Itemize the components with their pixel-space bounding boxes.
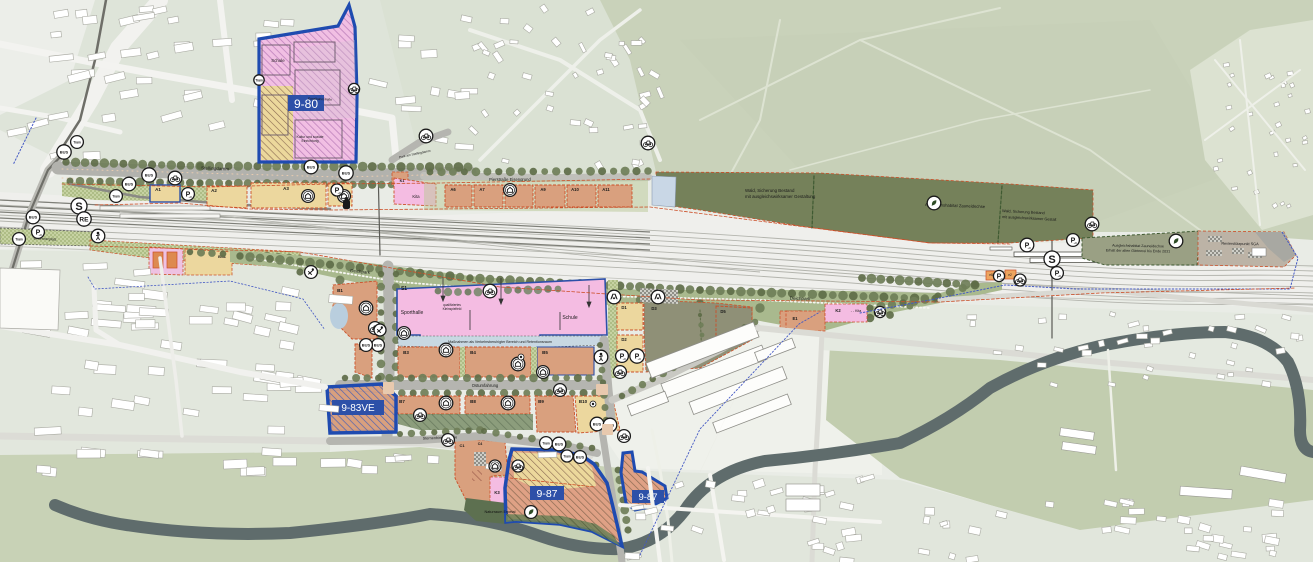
svg-text:BUS: BUS	[29, 215, 38, 220]
svg-text:BUS: BUS	[125, 182, 134, 187]
svg-text:D1: D1	[621, 305, 627, 310]
svg-text:A1: A1	[155, 187, 161, 192]
svg-text:BUS: BUS	[307, 165, 316, 170]
svg-text:+R: +R	[1028, 246, 1032, 250]
svg-text:B8: B8	[470, 399, 476, 404]
svg-text:e8: e8	[989, 273, 993, 277]
svg-text:+R: +R	[338, 191, 342, 195]
svg-text:Tram: Tram	[255, 79, 263, 83]
svg-text:Tram: Tram	[542, 442, 550, 446]
svg-text:Naturraum Erpetal: Naturraum Erpetal	[484, 510, 515, 514]
svg-text:+R: +R	[189, 195, 193, 199]
svg-text:B1: B1	[337, 288, 343, 293]
svg-text:- - Kita: - - Kita	[851, 309, 862, 313]
svg-text:Kleinspielfeld: Kleinspielfeld	[443, 307, 462, 311]
svg-text:e2: e2	[1008, 273, 1012, 277]
svg-text:mit ausgleichswirksamer Gestal: mit ausgleichswirksamer Gestaltung	[745, 194, 816, 199]
svg-text:+R: +R	[1058, 274, 1062, 278]
svg-text:RE: RE	[79, 216, 89, 223]
svg-text:K1: K1	[400, 179, 405, 183]
svg-text:A10: A10	[571, 187, 579, 192]
svg-text:Schule: Schule	[562, 315, 578, 321]
svg-text:Kita: Kita	[412, 194, 420, 199]
svg-text:+R: +R	[638, 357, 642, 361]
svg-text:+R: +R	[623, 357, 627, 361]
svg-text:Schule: Schule	[271, 58, 285, 63]
svg-text:Einrichtung: Einrichtung	[302, 139, 319, 143]
svg-text:BUS: BUS	[593, 422, 602, 427]
svg-text:B7: B7	[399, 399, 405, 404]
svg-text:B4: B4	[470, 350, 476, 355]
svg-text:Tram: Tram	[563, 455, 571, 459]
svg-text:C4: C4	[478, 442, 483, 446]
svg-text:9-87: 9-87	[536, 488, 557, 500]
svg-text:S1: S1	[401, 286, 407, 292]
svg-text:A2: A2	[211, 188, 217, 193]
svg-text:A6: A6	[450, 187, 456, 192]
svg-text:A9: A9	[540, 187, 546, 192]
svg-text:BUS: BUS	[362, 343, 371, 348]
svg-text:BUS: BUS	[145, 173, 154, 178]
svg-text:C1: C1	[459, 443, 465, 448]
svg-text:Wald, Sicherung Bestand: Wald, Sicherung Bestand	[745, 188, 795, 193]
svg-text:S: S	[75, 201, 82, 213]
svg-text:Tram: Tram	[73, 141, 81, 145]
svg-text:B10: B10	[579, 399, 588, 404]
svg-text:+R: +R	[1000, 277, 1004, 281]
svg-text:Tram: Tram	[112, 195, 120, 199]
svg-text:E1: E1	[792, 316, 798, 321]
svg-text:D3: D3	[651, 306, 657, 311]
svg-text:A3: A3	[283, 186, 289, 191]
svg-text:K2: K2	[835, 308, 841, 313]
svg-text:Sporthalle: Sporthalle	[401, 310, 424, 316]
svg-text:D5: D5	[720, 309, 726, 314]
svg-text:9-83VE: 9-83VE	[341, 403, 375, 414]
svg-text:S: S	[1048, 254, 1055, 266]
svg-text:BUS: BUS	[60, 150, 69, 155]
svg-text:Tram: Tram	[15, 238, 23, 242]
svg-text:K3: K3	[494, 490, 500, 495]
svg-text:B5: B5	[542, 350, 548, 355]
svg-text:BUS: BUS	[576, 455, 585, 460]
svg-text:A11: A11	[602, 187, 610, 192]
svg-text:BUS: BUS	[342, 171, 351, 176]
svg-text:B3: B3	[403, 350, 409, 355]
svg-text:A7: A7	[479, 187, 485, 192]
svg-text:BUS: BUS	[555, 442, 564, 447]
svg-text:Stellingdamm: Stellingdamm	[201, 166, 229, 172]
svg-text:BUS: BUS	[374, 343, 383, 348]
svg-text:B9: B9	[538, 399, 544, 404]
svg-text:Ostumfahrung: Ostumfahrung	[472, 383, 499, 388]
svg-text:+R: +R	[39, 233, 43, 237]
svg-text:9-87: 9-87	[638, 492, 657, 503]
svg-text:D2: D2	[621, 337, 627, 342]
svg-text:Maßnahmen als Verkehrsberuhigt: Maßnahmen als Verkehrsberuhigter Bereich…	[448, 340, 552, 344]
svg-text:Revierstützpunkt SGA: Revierstützpunkt SGA	[1221, 242, 1259, 247]
svg-text:+R: +R	[1074, 241, 1078, 245]
